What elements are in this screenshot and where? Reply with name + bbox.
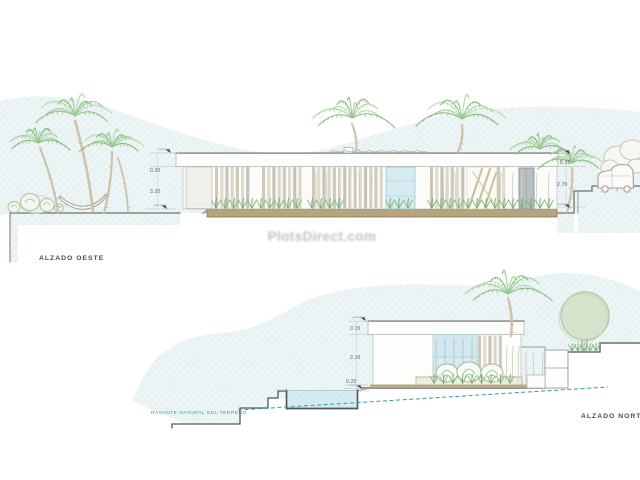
architectural-drawing-canvas: 0.35 3.30 0.35 2.70 ALZADO OESTE 0.35 3.… [0,0,640,480]
north-elevation-label: ALZADO NORTE [581,413,640,420]
dim-north-wall: 3.30 [350,355,361,361]
west-elevation-label: ALZADO OESTE [39,255,104,262]
dim-west-fascia-right: 0.35 [560,160,571,166]
dim-north-plinth: 0.25 [346,379,357,385]
dim-west-wall-left: 3.30 [150,189,161,195]
west-house-facade [176,148,558,210]
watermark: PlotsDirect.com [264,229,380,244]
dim-north-fascia: 0.35 [350,326,361,332]
pool [286,390,358,409]
terrain-note-label: RASANTE NATURAL DEL TERRENO [151,410,247,416]
dim-west-fascia-left: 0.35 [150,168,161,174]
